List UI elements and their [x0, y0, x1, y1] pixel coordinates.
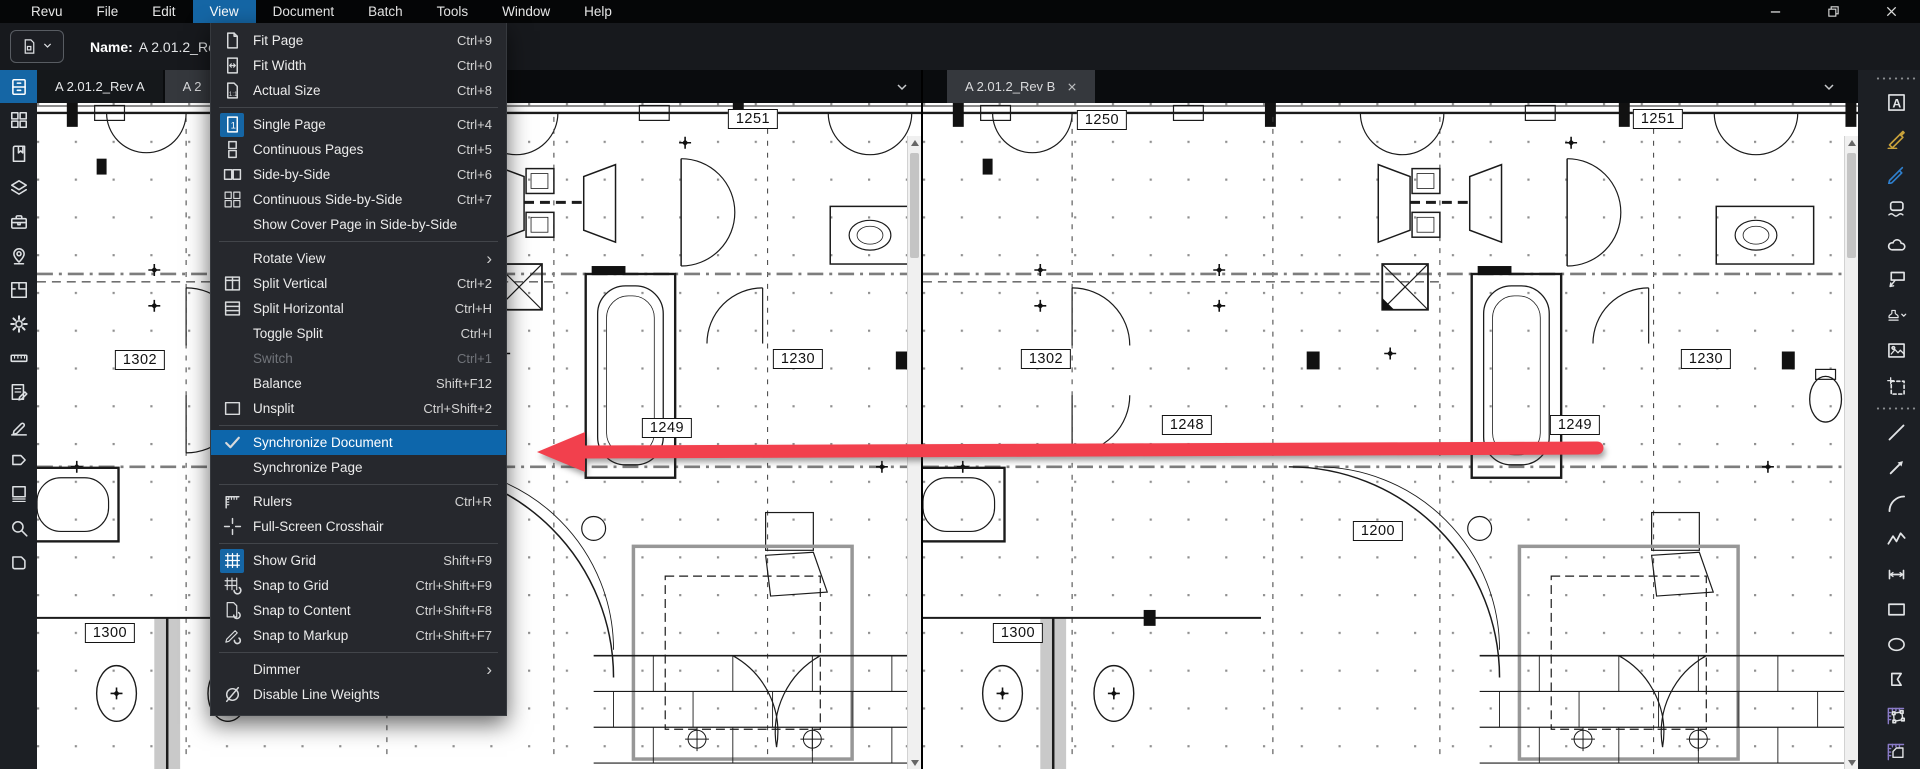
menu-item-label: Disable Line Weights — [253, 687, 506, 702]
view-menu-item-side-by-side[interactable]: Side-by-SideCtrl+6 — [211, 162, 506, 187]
tag-icon — [9, 450, 29, 470]
pane-right-tabbar: A 2.01.2_Rev B — [923, 70, 1858, 103]
panel-places[interactable] — [0, 239, 37, 273]
tab-label: A 2.01.2_Rev B — [965, 79, 1055, 94]
menu-item-shortcut: Ctrl+5 — [457, 142, 492, 157]
menu-item-shortcut: Ctrl+Shift+F7 — [415, 628, 492, 643]
tab-rev-b[interactable]: A 2.01.2_Rev B — [947, 70, 1095, 103]
stamp-tool-button[interactable] — [1875, 297, 1917, 332]
menu-item-shortcut: Shift+F9 — [443, 553, 492, 568]
minimize-icon — [1769, 5, 1782, 18]
menu-item-label: Continuous Pages — [253, 142, 457, 157]
eraser-tool-icon — [1886, 198, 1907, 219]
callout-tool-button[interactable] — [1875, 262, 1917, 297]
menu-item-label: Show Grid — [253, 553, 443, 568]
highlight-tool-button[interactable] — [1875, 120, 1917, 155]
arc-tool-icon — [1886, 493, 1907, 514]
menu-item-shortcut: Ctrl+4 — [457, 117, 492, 132]
scroll-up-icon[interactable] — [1845, 136, 1858, 150]
pages-icon — [9, 484, 29, 504]
submenu-arrow-icon: › — [486, 252, 492, 266]
menu-help[interactable]: Help — [567, 0, 629, 23]
document-type-dropdown[interactable] — [10, 30, 64, 63]
view-menu-item-single-page[interactable]: 1Single PageCtrl+4 — [211, 112, 506, 137]
panel-signature[interactable] — [0, 409, 37, 443]
tab-rev-a[interactable]: A 2.01.2_Rev A — [37, 70, 163, 103]
menu-item-label: Split Horizontal — [253, 301, 455, 316]
scroll-thumb[interactable] — [910, 153, 919, 258]
menu-tools[interactable]: Tools — [420, 0, 486, 23]
ellipse-tool-button[interactable] — [1875, 627, 1917, 662]
view-menu-item-snap-to-grid[interactable]: Snap to GridCtrl+Shift+F9 — [211, 573, 506, 598]
menu-icon-empty — [219, 213, 245, 237]
menu-item-label: Rotate View — [253, 251, 486, 266]
panel-measurements[interactable] — [0, 341, 37, 375]
menubar-items: RevuFileEditViewDocumentBatchToolsWindow… — [0, 0, 1920, 23]
menu-item-label: Show Cover Page in Side-by-Side — [253, 217, 506, 232]
view-menu-item-balance[interactable]: BalanceShift+F12 — [211, 371, 506, 396]
panel-pages[interactable] — [0, 477, 37, 511]
view-menu-item-continuous-pages[interactable]: Continuous PagesCtrl+5 — [211, 137, 506, 162]
menu-item-label: Unsplit — [253, 401, 423, 416]
cloud-tool-icon — [1886, 234, 1907, 255]
restore-button[interactable] — [1804, 0, 1862, 23]
menu-view[interactable]: View — [193, 0, 256, 23]
measure-polygon-tool-button[interactable] — [1875, 698, 1917, 733]
view-menu-item-split-horizontal[interactable]: Split HorizontalCtrl+H — [211, 296, 506, 321]
rectangle-tool-icon — [1886, 599, 1907, 620]
menu-icon-empty — [219, 456, 245, 480]
ellipse-tool-icon — [1886, 634, 1907, 655]
menu-item-label: Snap to Content — [253, 603, 415, 618]
dimension-tool-icon — [1886, 564, 1907, 585]
tab-label: A 2 — [183, 79, 202, 94]
menu-item-shortcut: Ctrl+R — [455, 494, 492, 509]
split-horizontal-icon — [219, 297, 245, 321]
polygon-tool-button[interactable] — [1875, 663, 1917, 698]
panel-layers[interactable] — [0, 171, 37, 205]
menu-icon-empty — [219, 372, 245, 396]
view-menu-item-rulers[interactable]: RulersCtrl+R — [211, 489, 506, 514]
panel-drag-handle[interactable] — [1875, 76, 1917, 81]
view-menu-item-actual-size[interactable]: 1:1Actual SizeCtrl+8 — [211, 78, 506, 103]
menu-separator — [219, 107, 498, 108]
view-menu-item-show-grid[interactable]: Show GridShift+F9 — [211, 548, 506, 573]
view-menu-item-show-cover-page-in-side-by-side[interactable]: Show Cover Page in Side-by-Side — [211, 212, 506, 237]
panel-thumbnails[interactable] — [0, 103, 37, 137]
document-name: Name:A 2.01.2_Rev — [90, 39, 223, 55]
line-tool-icon — [1886, 422, 1907, 443]
panel-search[interactable] — [0, 511, 37, 545]
close-button[interactable] — [1862, 0, 1920, 23]
tool-chest-icon — [9, 212, 29, 232]
chevron-down-icon — [42, 38, 53, 56]
menu-edit[interactable]: Edit — [135, 0, 192, 23]
arrow-tool-button[interactable] — [1875, 450, 1917, 485]
rectangle-tool-button[interactable] — [1875, 592, 1917, 627]
image-tool-icon — [1886, 340, 1907, 361]
menu-separator — [219, 241, 498, 242]
scroll-down-icon[interactable] — [1845, 755, 1858, 769]
menu-item-label: Split Vertical — [253, 276, 457, 291]
menu-item-label: Synchronize Page — [253, 460, 506, 475]
tab-label: A 2.01.2_Rev A — [55, 79, 145, 94]
menu-item-shortcut: Ctrl+6 — [457, 167, 492, 182]
view-menu-item-continuous-side-by-side[interactable]: Continuous Side-by-SideCtrl+7 — [211, 187, 506, 212]
snap-to-markup-icon — [219, 624, 245, 648]
check-icon — [219, 431, 245, 455]
pen-tool-button[interactable] — [1875, 156, 1917, 191]
markups-icon — [9, 382, 29, 402]
side-by-side-icon — [219, 163, 245, 187]
search-icon — [9, 518, 29, 538]
view-menu-item-split-vertical[interactable]: Split VerticalCtrl+2 — [211, 271, 506, 296]
menu-item-shortcut: Shift+F12 — [436, 376, 492, 391]
unsplit-icon — [219, 397, 245, 421]
menu-item-label: Full-Screen Crosshair — [253, 519, 506, 534]
scroll-up-icon[interactable] — [908, 136, 921, 150]
view-menu-item-fit-width[interactable]: Fit WidthCtrl+0 — [211, 53, 506, 78]
rulers-icon — [219, 490, 245, 514]
menu-item-label: Switch — [253, 351, 457, 366]
measurements-icon — [9, 348, 29, 368]
menu-item-shortcut: Ctrl+1 — [457, 351, 492, 366]
panel-links[interactable] — [0, 545, 37, 579]
panel-properties[interactable] — [0, 307, 37, 341]
crosshair-icon — [219, 515, 245, 539]
view-menu-item-synchronize-page[interactable]: Synchronize Page — [211, 455, 506, 480]
cloud-tool-button[interactable] — [1875, 227, 1917, 262]
drawing-area-right[interactable]: 12501251130212301248124912001300 — [923, 103, 1858, 769]
menu-item-label: Snap to Markup — [253, 628, 415, 643]
pane-right: A 2.01.2_Rev B 1250125113021230124812491… — [923, 70, 1858, 769]
menu-separator — [219, 652, 498, 653]
menu-item-shortcut: Ctrl+Shift+F9 — [415, 578, 492, 593]
menu-document[interactable]: Document — [256, 0, 352, 23]
callout-tool-icon — [1886, 269, 1907, 290]
text-tool-button[interactable]: A — [1875, 85, 1917, 120]
menu-revu[interactable]: Revu — [14, 0, 80, 23]
snap-to-grid-icon — [219, 574, 245, 598]
menu-separator — [219, 543, 498, 544]
panel-file-access[interactable] — [0, 70, 37, 103]
menu-item-label: Rulers — [253, 494, 455, 509]
menu-icon-empty — [219, 347, 245, 371]
highlight-tool-icon — [1886, 128, 1907, 149]
text-tool-icon: A — [1886, 92, 1907, 113]
menu-icon-empty — [219, 322, 245, 346]
panel-bookmarks[interactable] — [0, 137, 37, 171]
arrow-tool-icon — [1886, 457, 1907, 478]
polyline-tool-icon — [1886, 528, 1907, 549]
layers-icon — [9, 178, 29, 198]
view-menu-item-snap-to-markup[interactable]: Snap to MarkupCtrl+Shift+F7 — [211, 623, 506, 648]
tab-list-chevron-icon[interactable] — [883, 80, 921, 94]
view-menu-item-toggle-split[interactable]: Toggle SplitCtrl+I — [211, 321, 506, 346]
dimension-tool-button[interactable] — [1875, 556, 1917, 591]
view-menu-dropdown: Fit PageCtrl+9Fit WidthCtrl+01:1Actual S… — [210, 23, 507, 716]
menu-item-shortcut: Ctrl+2 — [457, 276, 492, 291]
menu-item-label: Side-by-Side — [253, 167, 457, 182]
menu-item-shortcut: Ctrl+7 — [457, 192, 492, 207]
document-icon — [21, 38, 38, 55]
floor-plan-right — [923, 103, 1858, 769]
actual-size-icon: 1:1 — [219, 79, 245, 103]
close-icon — [1885, 5, 1898, 18]
revu-application-window: RevuFileEditViewDocumentBatchToolsWindow… — [0, 0, 1920, 769]
menu-separator — [219, 425, 498, 426]
eraser-tool-button[interactable] — [1875, 191, 1917, 226]
fit-page-icon — [219, 29, 245, 53]
panel-tag[interactable] — [0, 443, 37, 477]
name-label: Name: — [90, 39, 133, 55]
menu-item-shortcut: Ctrl+H — [455, 301, 492, 316]
continuous-pages-icon — [219, 138, 245, 162]
view-menu-item-snap-to-content[interactable]: Snap to ContentCtrl+Shift+F8 — [211, 598, 506, 623]
menu-window[interactable]: Window — [485, 0, 567, 23]
submenu-arrow-icon: › — [486, 663, 492, 677]
menu-item-label: Balance — [253, 376, 436, 391]
panel-markups[interactable] — [0, 375, 37, 409]
view-menu-item-rotate-view[interactable]: Rotate View› — [211, 246, 506, 271]
menu-item-shortcut: Ctrl+Shift+F8 — [415, 603, 492, 618]
line-tool-button[interactable] — [1875, 415, 1917, 450]
menu-item-shortcut: Ctrl+9 — [457, 33, 492, 48]
measure-area-tool-button[interactable] — [1875, 733, 1917, 768]
menu-item-label: Fit Width — [253, 58, 457, 73]
menu-item-label: Snap to Grid — [253, 578, 415, 593]
snapshot-tool-icon — [1886, 376, 1907, 397]
arc-tool-button[interactable] — [1875, 485, 1917, 520]
tab-list-chevron-icon[interactable] — [1810, 80, 1858, 94]
links-icon — [9, 552, 29, 572]
disable-line-weights-icon — [219, 683, 245, 707]
menu-item-label: Actual Size — [253, 83, 457, 98]
svg-text:A: A — [1892, 97, 1901, 111]
continuous-side-by-side-icon — [219, 188, 245, 212]
panel-tool-chest[interactable] — [0, 205, 37, 239]
svg-text:1:1: 1:1 — [228, 91, 237, 98]
restore-icon — [1827, 5, 1840, 18]
view-menu-item-full-screen-crosshair[interactable]: Full-Screen Crosshair — [211, 514, 506, 539]
split-vertical-icon — [219, 272, 245, 296]
window-controls — [1746, 0, 1920, 23]
toolbar-separator — [1875, 406, 1917, 411]
menu-item-shortcut: Ctrl+I — [461, 326, 492, 341]
image-tool-button[interactable] — [1875, 333, 1917, 368]
fit-width-icon — [219, 54, 245, 78]
thumbnails-icon — [9, 110, 29, 130]
measure-area-tool-icon — [1886, 741, 1907, 762]
menu-item-shortcut: Ctrl+Shift+2 — [423, 401, 492, 416]
menu-item-label: Toggle Split — [253, 326, 461, 341]
menu-icon-empty — [219, 658, 245, 682]
tab-close-icon[interactable] — [1067, 82, 1077, 92]
menu-item-shortcut: Ctrl+8 — [457, 83, 492, 98]
menu-item-label: Single Page — [253, 117, 457, 132]
left-panel-rail — [0, 70, 37, 769]
scroll-thumb[interactable] — [1847, 153, 1856, 258]
view-menu-item-unsplit[interactable]: UnsplitCtrl+Shift+2 — [211, 396, 506, 421]
view-menu-item-switch: SwitchCtrl+1 — [211, 346, 506, 371]
menu-item-shortcut: Ctrl+0 — [457, 58, 492, 73]
menu-batch[interactable]: Batch — [351, 0, 420, 23]
right-tool-rail: A — [1858, 70, 1920, 769]
view-menu-item-dimmer[interactable]: Dimmer› — [211, 657, 506, 682]
pen-tool-icon — [1886, 163, 1907, 184]
snapshot-tool-button[interactable] — [1875, 368, 1917, 403]
menu-item-label: Fit Page — [253, 33, 457, 48]
polyline-tool-button[interactable] — [1875, 521, 1917, 556]
scrollbar-right-pane[interactable] — [1844, 136, 1858, 769]
show-grid-icon — [220, 549, 244, 573]
spaces-icon — [9, 280, 29, 300]
view-menu-item-fit-page[interactable]: Fit PageCtrl+9 — [211, 28, 506, 53]
panel-spaces[interactable] — [0, 273, 37, 307]
menu-separator — [219, 484, 498, 485]
single-page-icon: 1 — [220, 113, 244, 137]
scroll-down-icon[interactable] — [908, 755, 921, 769]
bookmarks-icon — [9, 144, 29, 164]
menu-item-label: Continuous Side-by-Side — [253, 192, 457, 207]
signature-icon — [9, 416, 29, 436]
view-menu-item-disable-line-weights[interactable]: Disable Line Weights — [211, 682, 506, 707]
menu-icon-empty — [219, 247, 245, 271]
scrollbar-left-pane[interactable] — [907, 136, 921, 769]
menu-item-label: Synchronize Document — [253, 435, 506, 450]
view-menu-item-synchronize-document[interactable]: Synchronize Document — [211, 430, 506, 455]
measure-polygon-tool-icon — [1886, 705, 1907, 726]
minimize-button[interactable] — [1746, 0, 1804, 23]
svg-text:1: 1 — [230, 121, 235, 132]
file-access-icon — [9, 77, 29, 97]
places-icon — [9, 246, 29, 266]
polygon-tool-icon — [1886, 670, 1907, 691]
snap-to-content-icon — [219, 599, 245, 623]
properties-icon — [9, 314, 29, 334]
menu-file[interactable]: File — [80, 0, 136, 23]
menu-item-label: Dimmer — [253, 662, 486, 677]
stamp-tool-icon — [1886, 305, 1907, 326]
